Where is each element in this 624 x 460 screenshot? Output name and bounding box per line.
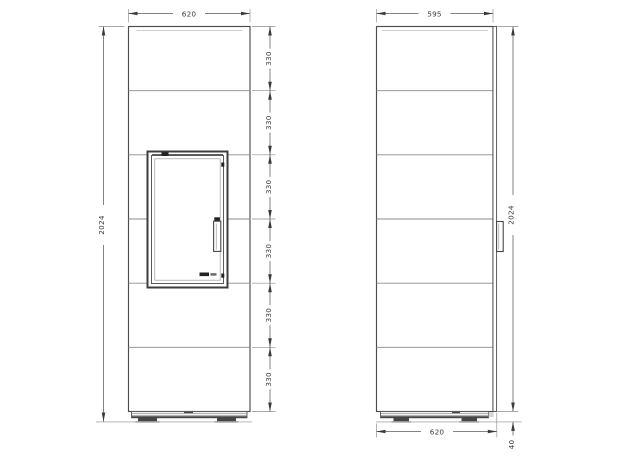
side-base (376, 412, 522, 423)
side-foot-left (394, 418, 410, 421)
side-base-front-tab (489, 412, 494, 417)
front-base (96, 412, 252, 423)
stove-door (148, 152, 228, 288)
stove-dimension-drawing: 620 2024 (0, 0, 624, 460)
dim-side-depth-label: 595 (427, 9, 442, 18)
dim-segment-label: 330 (264, 308, 273, 323)
door-handle-bar (214, 221, 221, 251)
dim-side-height: 2024 (498, 27, 520, 412)
side-front-cover-layer (493, 27, 497, 412)
dim-front-segments: 330 330 330 330 330 330 (252, 27, 277, 412)
dim-segment-label: 330 (264, 244, 273, 259)
door-latch-detail (162, 152, 169, 156)
dim-side-base-height-label: 40 (507, 440, 516, 450)
front-base-dark-band (132, 416, 247, 418)
dim-front-width-label: 620 (182, 9, 197, 18)
dim-side-base-height: 40 (498, 412, 519, 450)
dim-side-height-label: 2024 (507, 205, 516, 225)
dim-segment-label: 330 (264, 51, 273, 66)
dim-front-height: 2024 (97, 27, 125, 422)
door-air-control-knob (211, 273, 217, 275)
dim-segment-label: 330 (264, 115, 273, 130)
dim-segment-label: 330 (264, 372, 273, 387)
side-view: 595 2024 40 620 (376, 9, 522, 450)
dim-side-depth: 595 (377, 9, 494, 23)
side-base-dark-band (381, 416, 488, 418)
dim-side-base-depth-label: 620 (430, 427, 445, 436)
technical-drawing-page: 620 2024 (0, 0, 624, 460)
door-air-control (200, 273, 210, 277)
side-base-center-mark (452, 412, 460, 413)
door-handle (214, 217, 221, 251)
side-door-handle-profile (497, 222, 504, 252)
front-foot-left (138, 418, 157, 421)
dim-front-width: 620 (129, 9, 251, 23)
dim-front-height-label: 2024 (97, 215, 106, 235)
dim-segment-label: 330 (264, 179, 273, 194)
front-foot-right (217, 418, 236, 421)
door-hinge-pin-bottom (221, 274, 224, 278)
front-base-center-mark (184, 412, 193, 413)
door-hinge-pin-top (221, 163, 224, 167)
front-view: 620 2024 (96, 9, 277, 423)
side-foot-right (462, 418, 478, 421)
